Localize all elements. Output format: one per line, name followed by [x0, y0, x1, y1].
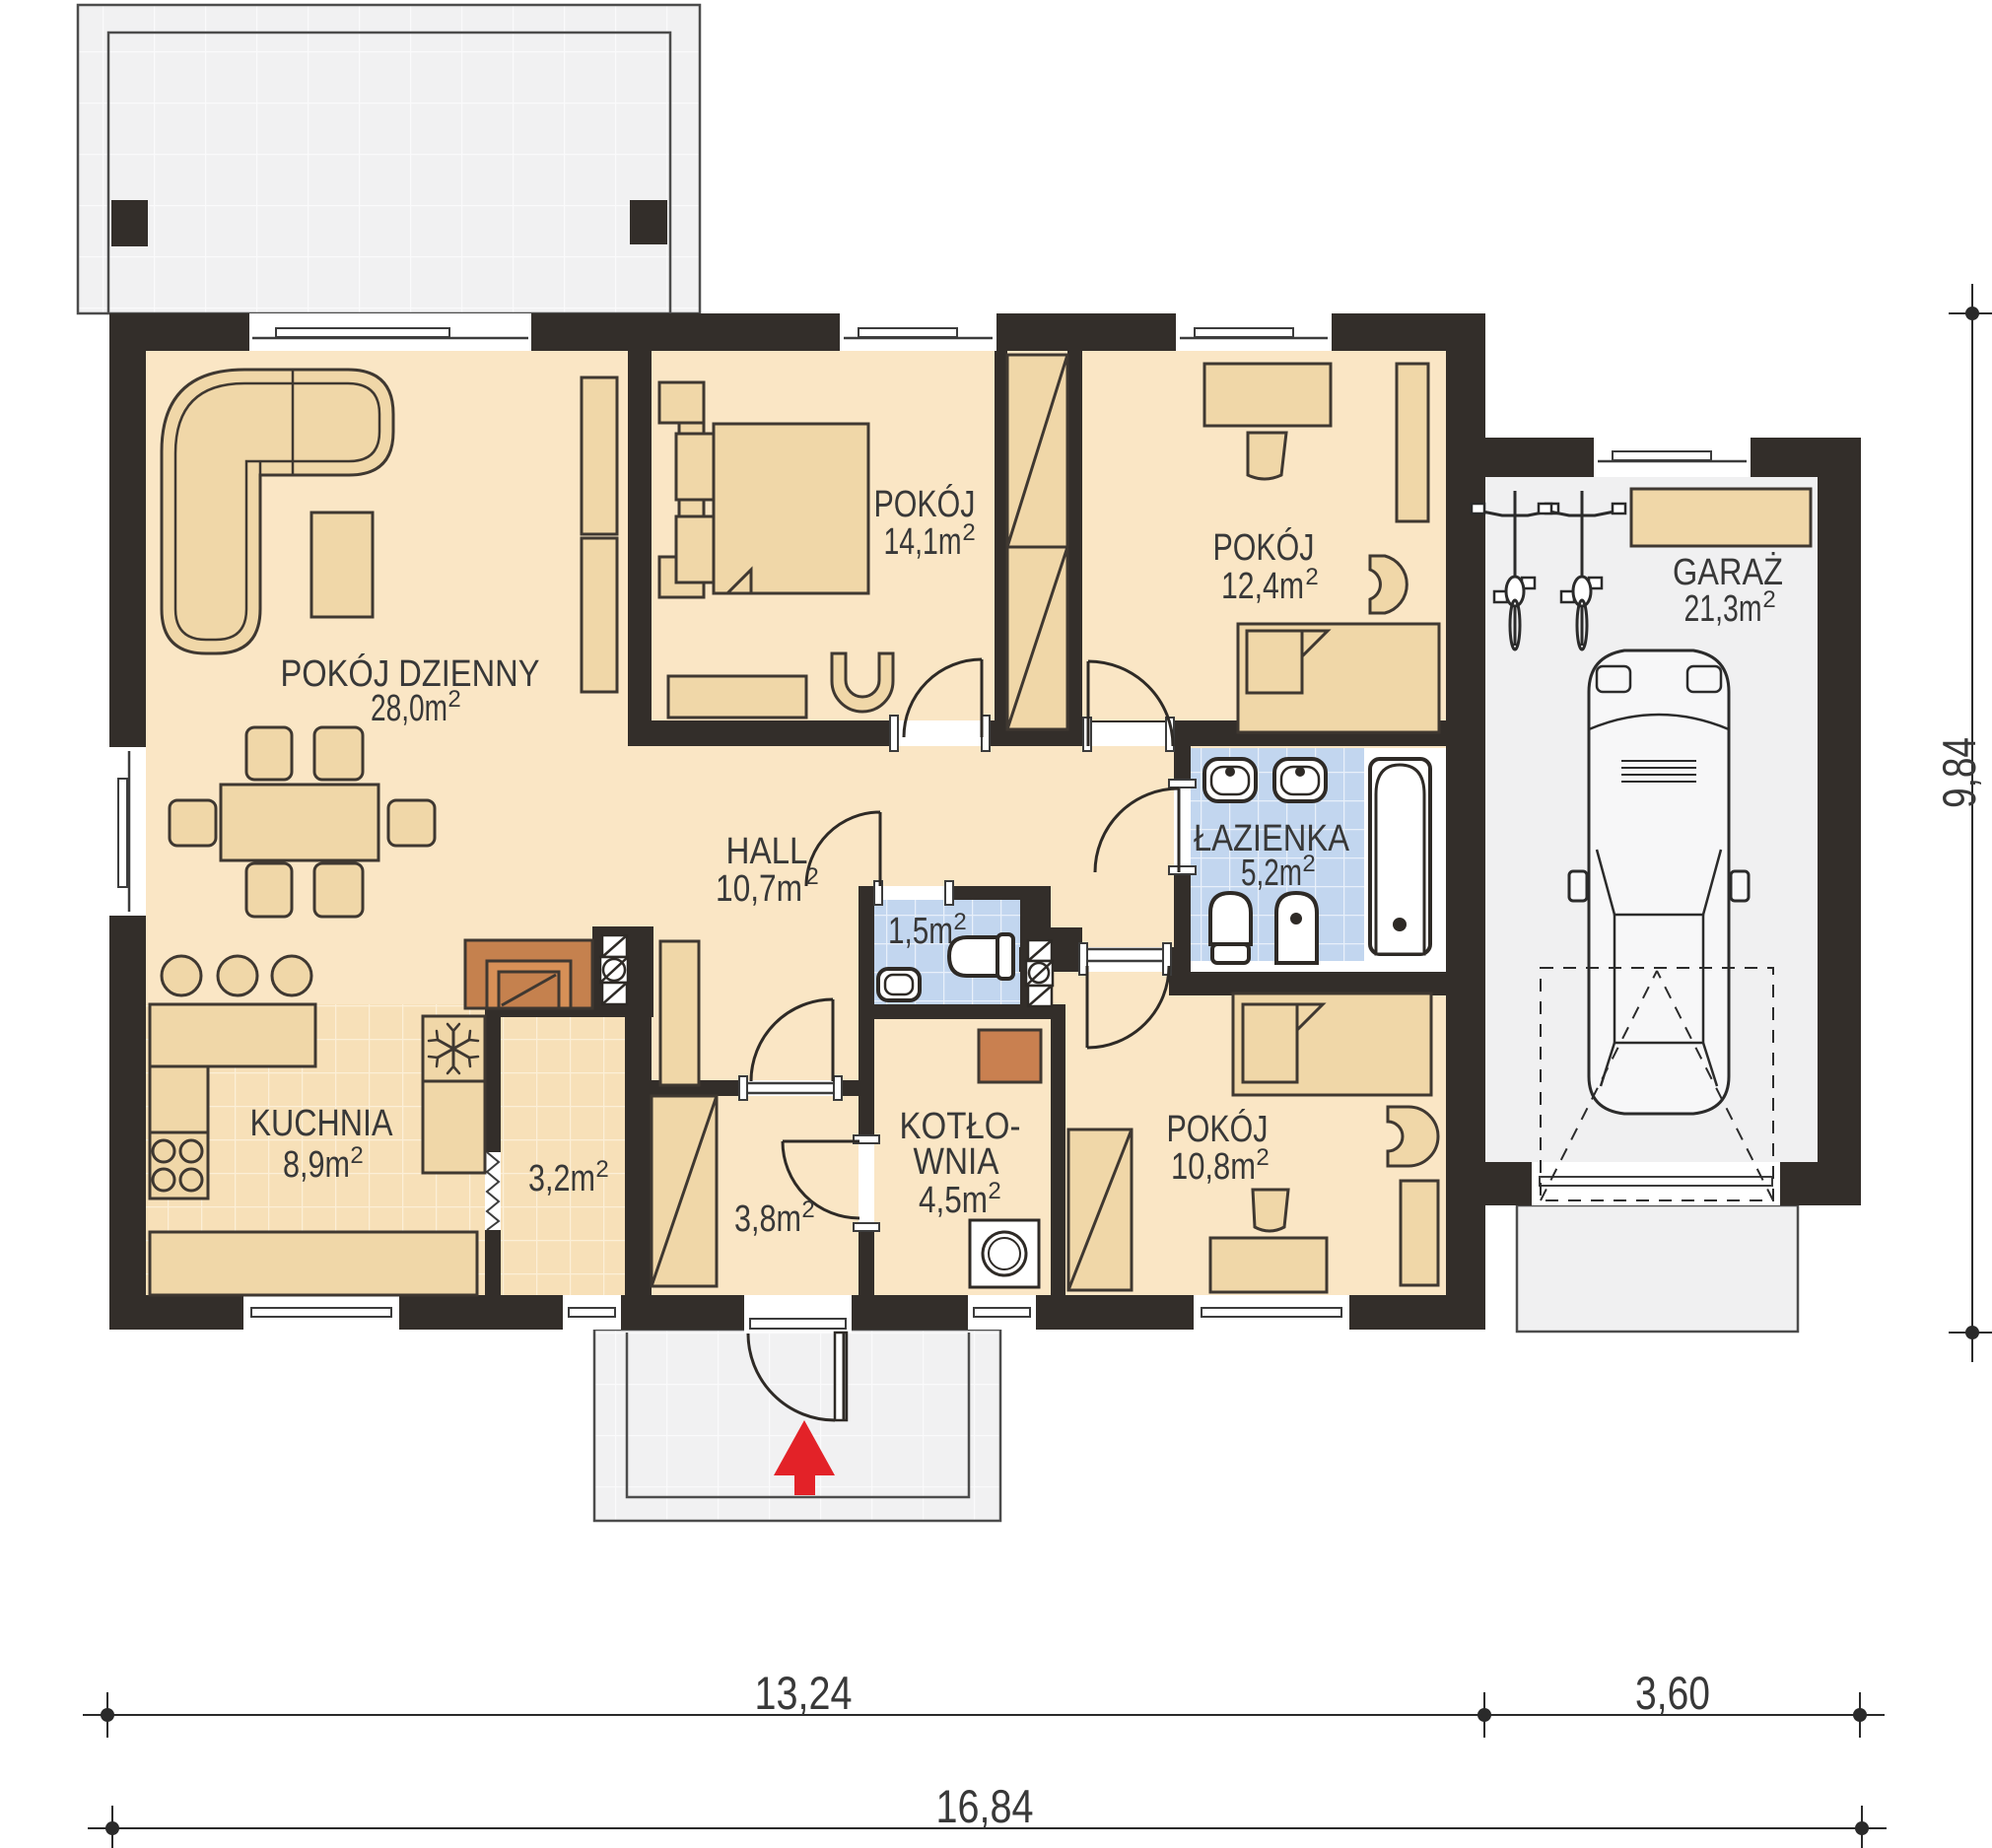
svg-text:1,5m: 1,5m: [888, 911, 953, 952]
svg-text:8,9m: 8,9m: [283, 1144, 350, 1186]
svg-text:HALL: HALL: [726, 831, 808, 872]
svg-text:4,5m: 4,5m: [919, 1180, 988, 1221]
svg-text:2: 2: [805, 863, 818, 890]
svg-text:9,84: 9,84: [1933, 737, 1985, 808]
svg-text:2: 2: [447, 686, 460, 713]
svg-text:3,8m: 3,8m: [734, 1198, 801, 1240]
svg-text:2: 2: [988, 1178, 1000, 1204]
svg-text:10,7m: 10,7m: [716, 868, 802, 910]
svg-text:2: 2: [1256, 1144, 1269, 1171]
svg-text:14,1m: 14,1m: [884, 521, 962, 563]
svg-text:2: 2: [595, 1156, 608, 1183]
svg-text:12,4m: 12,4m: [1221, 566, 1304, 607]
svg-text:2: 2: [801, 1197, 814, 1223]
svg-text:POKÓJ: POKÓJ: [874, 483, 976, 525]
svg-text:2: 2: [953, 909, 966, 935]
svg-text:WNIA: WNIA: [914, 1141, 1000, 1183]
svg-text:10,8m: 10,8m: [1171, 1146, 1256, 1188]
svg-text:2: 2: [1305, 564, 1318, 590]
svg-text:21,3m: 21,3m: [1684, 588, 1762, 630]
svg-text:16,84: 16,84: [936, 1780, 1034, 1832]
svg-text:3,60: 3,60: [1635, 1667, 1710, 1719]
svg-text:28,0m: 28,0m: [371, 688, 447, 729]
svg-text:POKÓJ: POKÓJ: [1167, 1108, 1269, 1150]
svg-text:2: 2: [350, 1142, 363, 1169]
svg-text:13,24: 13,24: [755, 1667, 853, 1719]
svg-text:3,2m: 3,2m: [528, 1158, 595, 1199]
svg-text:2: 2: [1762, 586, 1775, 613]
svg-text:2: 2: [962, 519, 975, 546]
svg-text:5,2m: 5,2m: [1241, 853, 1302, 894]
svg-text:POKÓJ: POKÓJ: [1213, 526, 1315, 569]
svg-text:2: 2: [1302, 851, 1315, 877]
svg-text:KUCHNIA: KUCHNIA: [250, 1103, 394, 1144]
